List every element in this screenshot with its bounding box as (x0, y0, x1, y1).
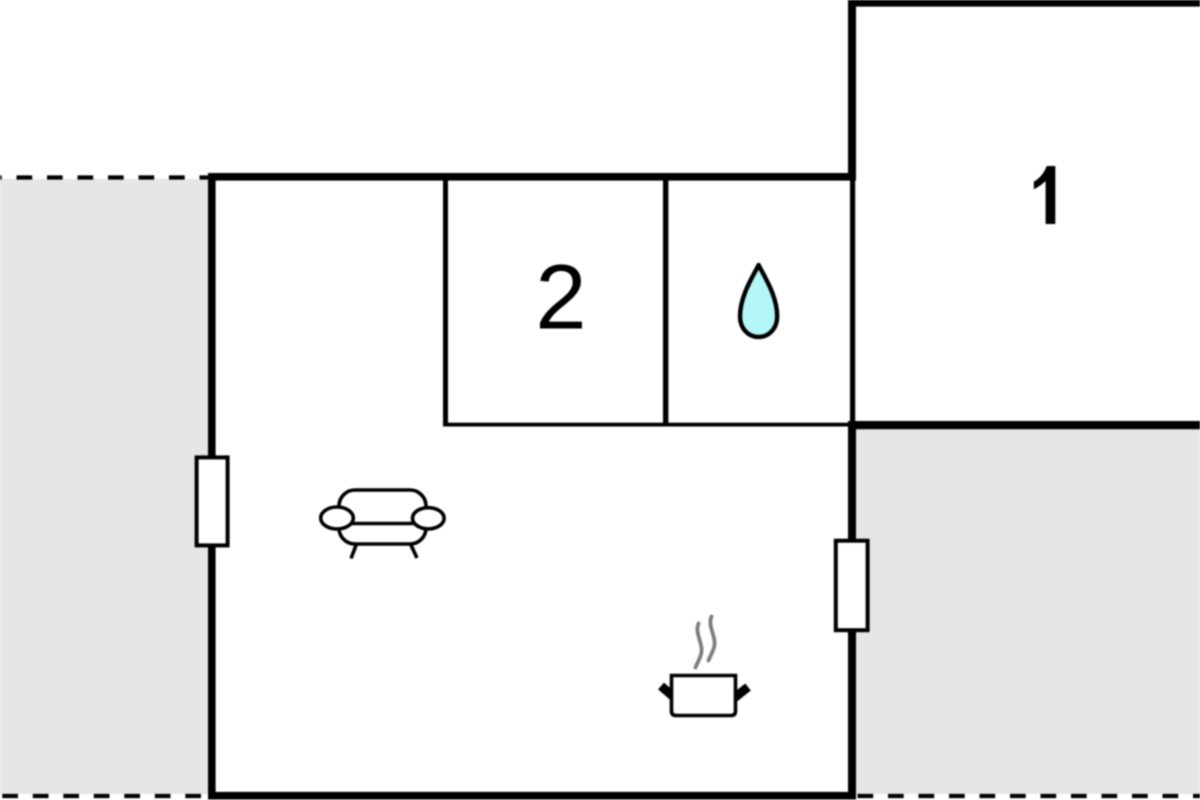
svg-text:2: 2 (535, 247, 586, 349)
